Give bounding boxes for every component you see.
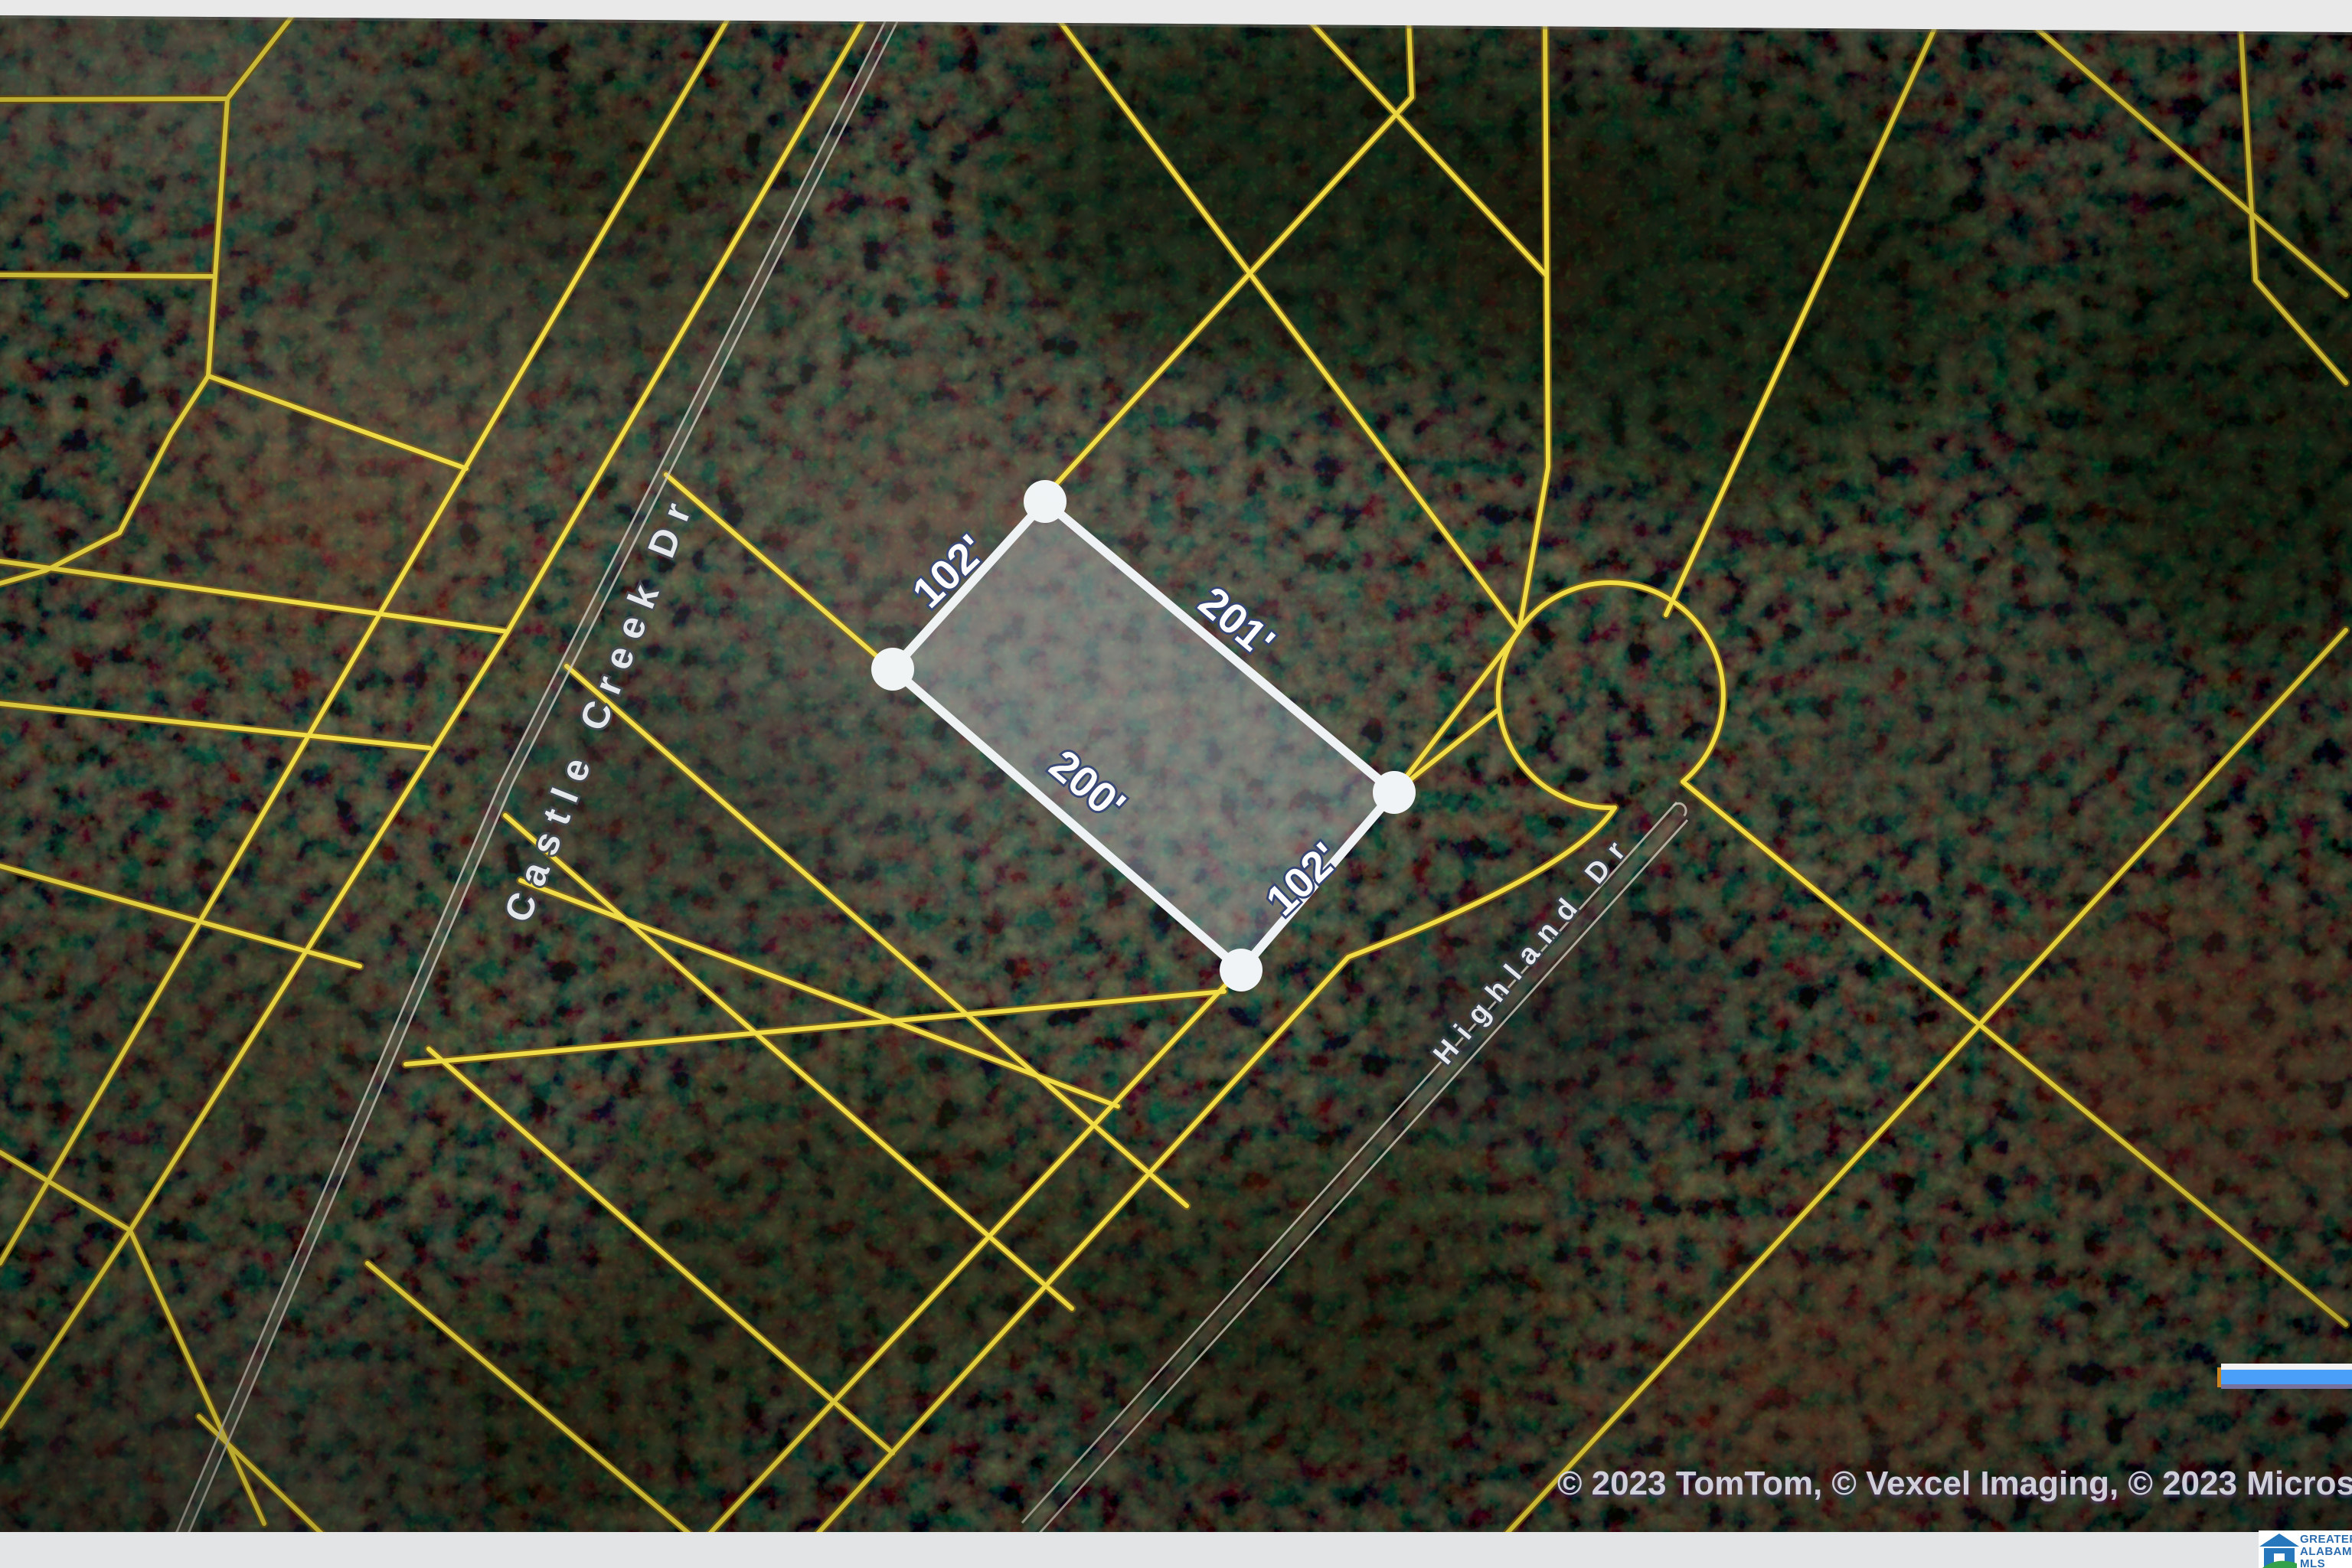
- svg-text:© 2023 TomTom, © Vexcel Imagin: © 2023 TomTom, © Vexcel Imaging, © 2023 …: [1557, 1465, 2352, 1502]
- svg-text:ALABAMA: ALABAMA: [2300, 1545, 2352, 1558]
- svg-text:MLS: MLS: [2300, 1557, 2325, 1568]
- svg-text:GREATER: GREATER: [2300, 1533, 2352, 1546]
